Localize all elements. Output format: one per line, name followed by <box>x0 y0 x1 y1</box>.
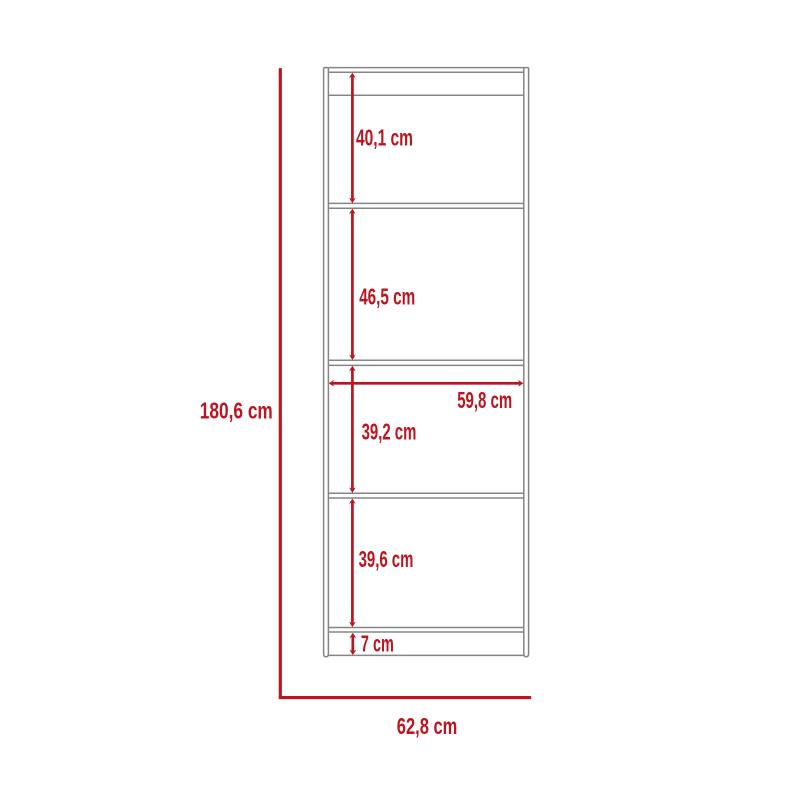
svg-text:39,6 cm: 39,6 cm <box>359 546 414 572</box>
svg-text:39,2 cm: 39,2 cm <box>362 419 417 445</box>
svg-text:62,8 cm: 62,8 cm <box>397 713 458 739</box>
svg-text:46,5 cm: 46,5 cm <box>359 284 415 310</box>
svg-text:180,6 cm: 180,6 cm <box>200 397 273 423</box>
svg-text:59,8 cm: 59,8 cm <box>457 387 512 413</box>
svg-text:40,1 cm: 40,1 cm <box>356 125 413 151</box>
svg-text:7 cm: 7 cm <box>361 631 394 657</box>
